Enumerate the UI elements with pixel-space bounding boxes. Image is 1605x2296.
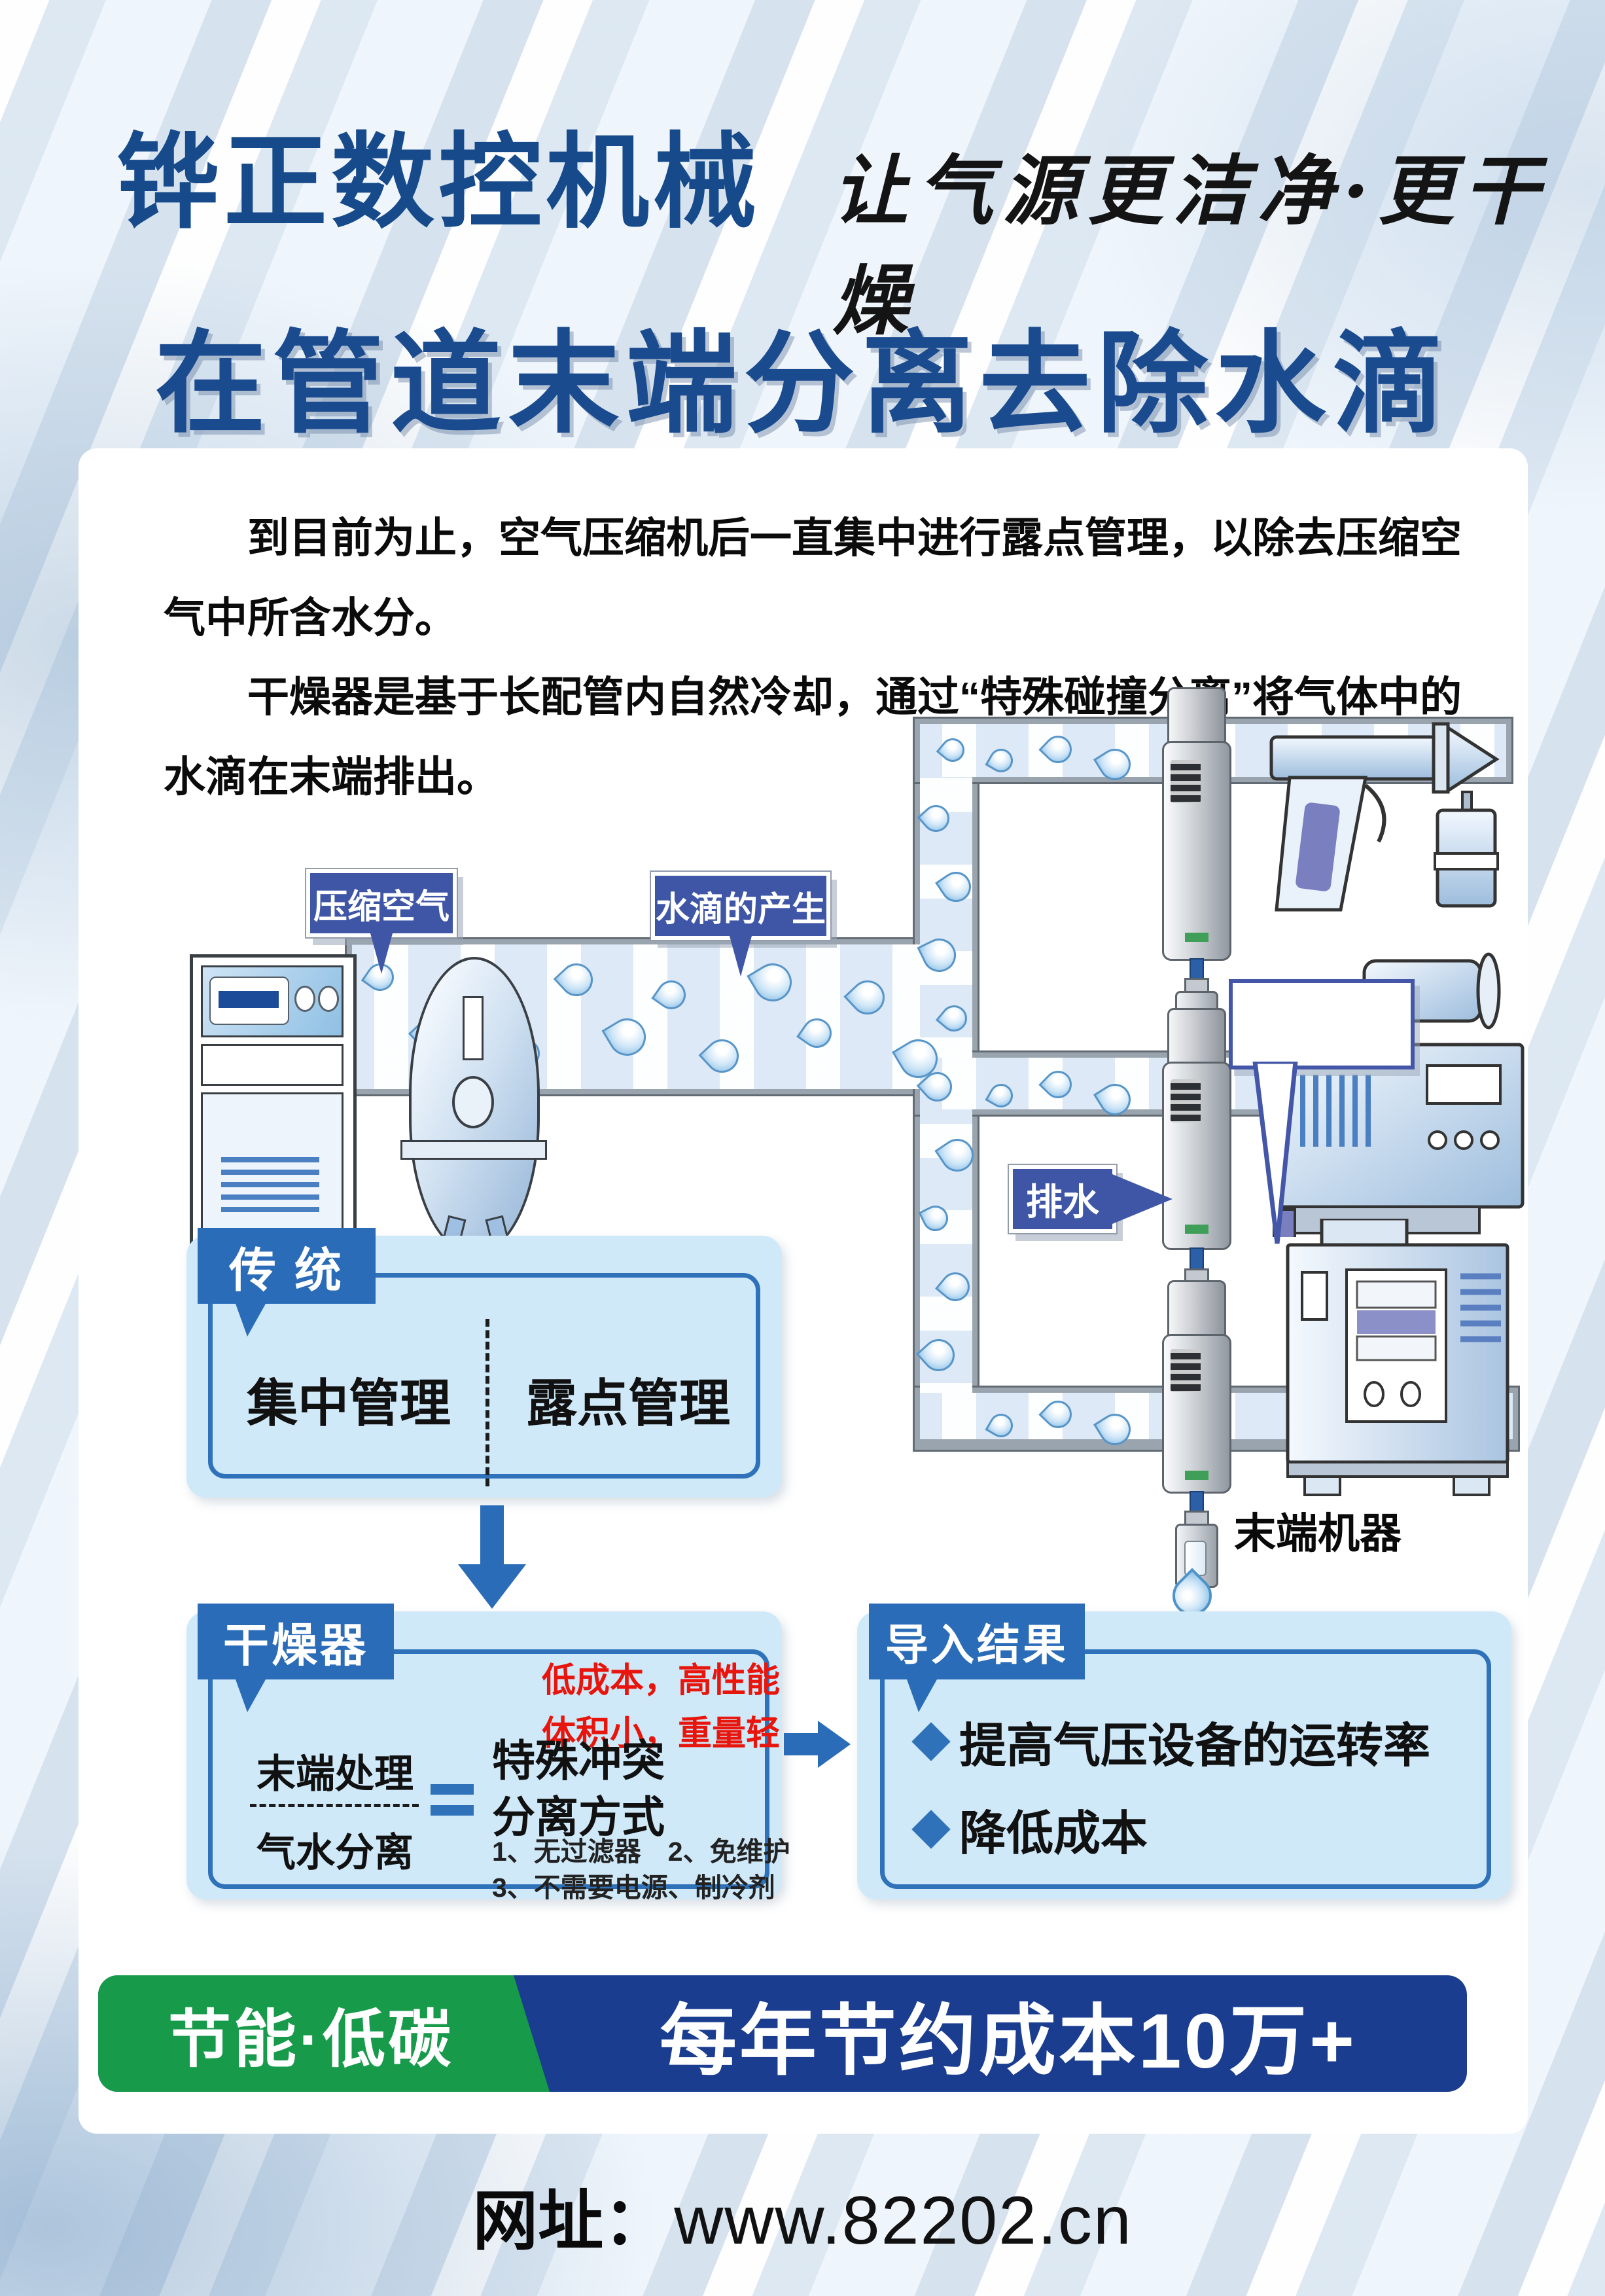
traditional-tag: 传 统 bbox=[198, 1228, 376, 1304]
dryer-unit-bottom bbox=[1162, 1280, 1227, 1511]
label-water-droplets-text: 水滴的产生 bbox=[656, 882, 826, 931]
dryer-unit-middle bbox=[1162, 1008, 1227, 1270]
page-title: 在管道末端分离去除水滴 bbox=[0, 293, 1605, 454]
dryer-tag-text: 干燥器 bbox=[223, 1609, 368, 1675]
dryer-tag: 干燥器 bbox=[198, 1604, 394, 1679]
label-drain-text: 排水 bbox=[1026, 1173, 1099, 1226]
traditional-item-right: 露点管理 bbox=[517, 1363, 739, 1436]
banner-blue-segment: 每年节约成本10万+ bbox=[550, 1975, 1467, 2092]
dashed-divider bbox=[485, 1319, 489, 1486]
compressor-mid-band bbox=[201, 1044, 344, 1086]
down-arrow-icon bbox=[480, 1505, 504, 1566]
dryer-notes: 1、无过滤器 2、免维护 3、不需要电源、制冷剂 bbox=[492, 1834, 790, 1907]
compressor-control-panel bbox=[201, 965, 344, 1037]
dryer-term-top: 末端处理 bbox=[243, 1742, 427, 1799]
tank-band bbox=[400, 1140, 547, 1160]
right-arrow-icon bbox=[784, 1733, 819, 1755]
empty-callout-box bbox=[1229, 979, 1415, 1069]
website-label: 网址： bbox=[472, 2168, 669, 2263]
dryer-unit-top bbox=[1162, 687, 1227, 982]
compressor-display bbox=[209, 977, 289, 1025]
traditional-tag-text: 传 统 bbox=[229, 1232, 344, 1300]
dryer-cap bbox=[1167, 1008, 1226, 1068]
result-bullet-2: 降低成本 bbox=[917, 1795, 1148, 1863]
end-machine-cabinet bbox=[1276, 1219, 1525, 1496]
result-tag: 导入结果 bbox=[869, 1604, 1085, 1679]
compressor-button bbox=[318, 986, 339, 1012]
result-bullet-2-text: 降低成本 bbox=[959, 1795, 1148, 1863]
dryer-drain-valve bbox=[1190, 958, 1204, 980]
dryer-drain-valve bbox=[1190, 1491, 1204, 1513]
dryer-note-2: 3、不需要电源、制冷剂 bbox=[492, 1870, 790, 1906]
footer-website: 网址： www.82202.cn bbox=[0, 2168, 1605, 2263]
dryer-body bbox=[1162, 741, 1231, 961]
dryer-drain-valve bbox=[1190, 1247, 1204, 1270]
diamond-bullet-icon bbox=[911, 1722, 950, 1761]
banner-blue-text: 每年节约成本10万+ bbox=[660, 1978, 1357, 2090]
dryer-note-1: 1、无过滤器 2、免维护 bbox=[492, 1834, 790, 1870]
dashed-divider bbox=[250, 1804, 419, 1807]
down-arrow-head-icon bbox=[458, 1564, 526, 1609]
tank-port bbox=[452, 1076, 494, 1128]
company-name: 铧正数控机械 bbox=[116, 98, 760, 248]
compressor-button bbox=[294, 986, 315, 1012]
air-tank bbox=[409, 957, 540, 1255]
result-bullet-1-text: 提高气压设备的运转率 bbox=[959, 1707, 1430, 1776]
traditional-item-left: 集中管理 bbox=[241, 1363, 457, 1436]
callout-pointer bbox=[1243, 1062, 1309, 1251]
label-drain: 排水 bbox=[1009, 1165, 1116, 1233]
banner-green-segment: 节能·低碳 bbox=[98, 1975, 550, 2092]
dryer-cap bbox=[1167, 1280, 1226, 1340]
dryer-sticker bbox=[1185, 1471, 1208, 1480]
dryer-cap bbox=[1167, 687, 1226, 747]
label-water-droplets: 水滴的产生 bbox=[651, 872, 830, 940]
dryer-label-plate bbox=[1171, 760, 1201, 803]
website-url: www.82202.cn bbox=[674, 2182, 1132, 2260]
result-tag-text: 导入结果 bbox=[885, 1610, 1068, 1673]
dryer-sticker bbox=[1185, 933, 1208, 942]
dryer-label-plate bbox=[1171, 1079, 1201, 1122]
diamond-bullet-icon bbox=[911, 1810, 950, 1848]
poster-page: 铧正数控机械 让气源更洁净·更干燥 在管道末端分离去除水滴 到目前为止，空气压缩… bbox=[0, 0, 1605, 2296]
dryer-term-bottom: 气水分离 bbox=[243, 1821, 427, 1878]
intro-paragraph-1: 到目前为止，空气压缩机后一直集中进行露点管理，以除去压缩空气中所含水分。 bbox=[164, 499, 1495, 658]
label-compressed-air-text: 压缩空气 bbox=[313, 879, 450, 928]
compressor-display-bar bbox=[219, 991, 279, 1008]
equals-icon bbox=[431, 1784, 474, 1795]
label-compressed-air: 压缩空气 bbox=[306, 869, 457, 937]
end-machine-caption: 末端机器 bbox=[1234, 1500, 1402, 1560]
dryer-method: 特殊冲突 分离方式 bbox=[492, 1733, 665, 1846]
vent-grille-icon bbox=[221, 1157, 319, 1217]
dryer-label-plate bbox=[1171, 1349, 1201, 1392]
dryer-body bbox=[1162, 1334, 1231, 1494]
dryer-method-line1: 特殊冲突 bbox=[492, 1733, 665, 1789]
dryer-highlight-1: 低成本，高性能 bbox=[542, 1655, 780, 1708]
right-arrow-head-icon bbox=[818, 1721, 851, 1768]
equals-icon bbox=[431, 1805, 474, 1816]
bottom-banner: 节能·低碳 每年节约成本10万+ bbox=[98, 1975, 1467, 2092]
banner-green-text: 节能·低碳 bbox=[168, 1988, 480, 2079]
dryer-sticker bbox=[1185, 1225, 1208, 1234]
tank-slot bbox=[463, 996, 484, 1060]
result-bullet-1: 提高气压设备的运转率 bbox=[917, 1707, 1430, 1776]
spray-gun-machine bbox=[1266, 694, 1528, 929]
